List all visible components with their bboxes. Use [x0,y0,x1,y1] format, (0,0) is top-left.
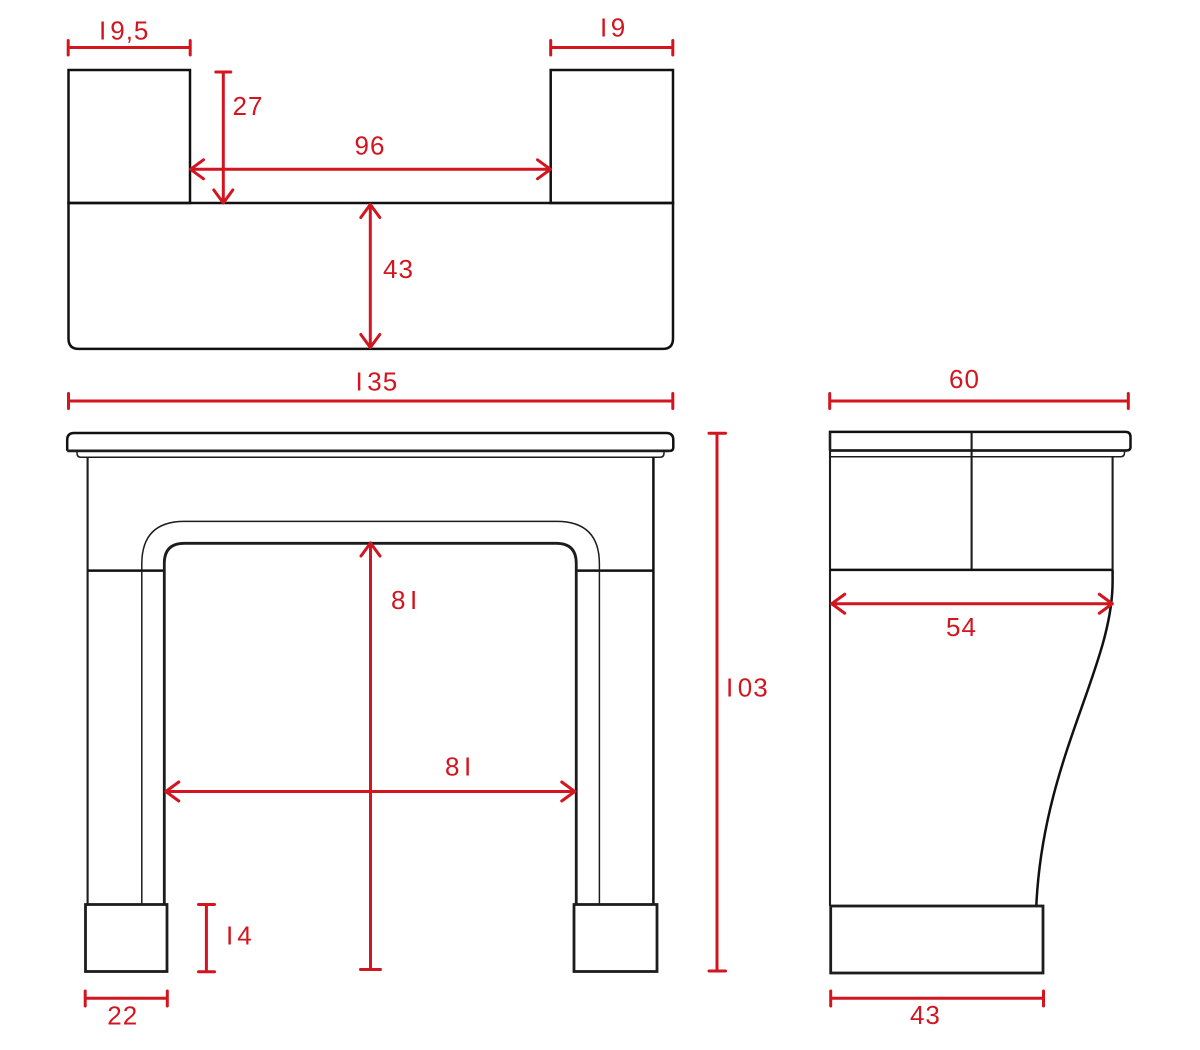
svg-text:96: 96 [355,131,386,161]
svg-text:27: 27 [233,91,264,121]
svg-text:43: 43 [383,254,414,284]
svg-text:22: 22 [107,1001,138,1031]
svg-text:54: 54 [946,612,977,642]
svg-text:43: 43 [910,1000,941,1030]
svg-text:60: 60 [949,364,980,394]
svg-text:I9: I9 [600,13,626,43]
svg-text:8I: 8I [445,752,472,782]
svg-text:I9,5: I9,5 [99,16,149,46]
svg-text:8I: 8I [391,585,418,615]
svg-text:I4: I4 [226,921,253,951]
svg-text:I03: I03 [726,673,769,703]
svg-text:I35: I35 [356,367,399,397]
